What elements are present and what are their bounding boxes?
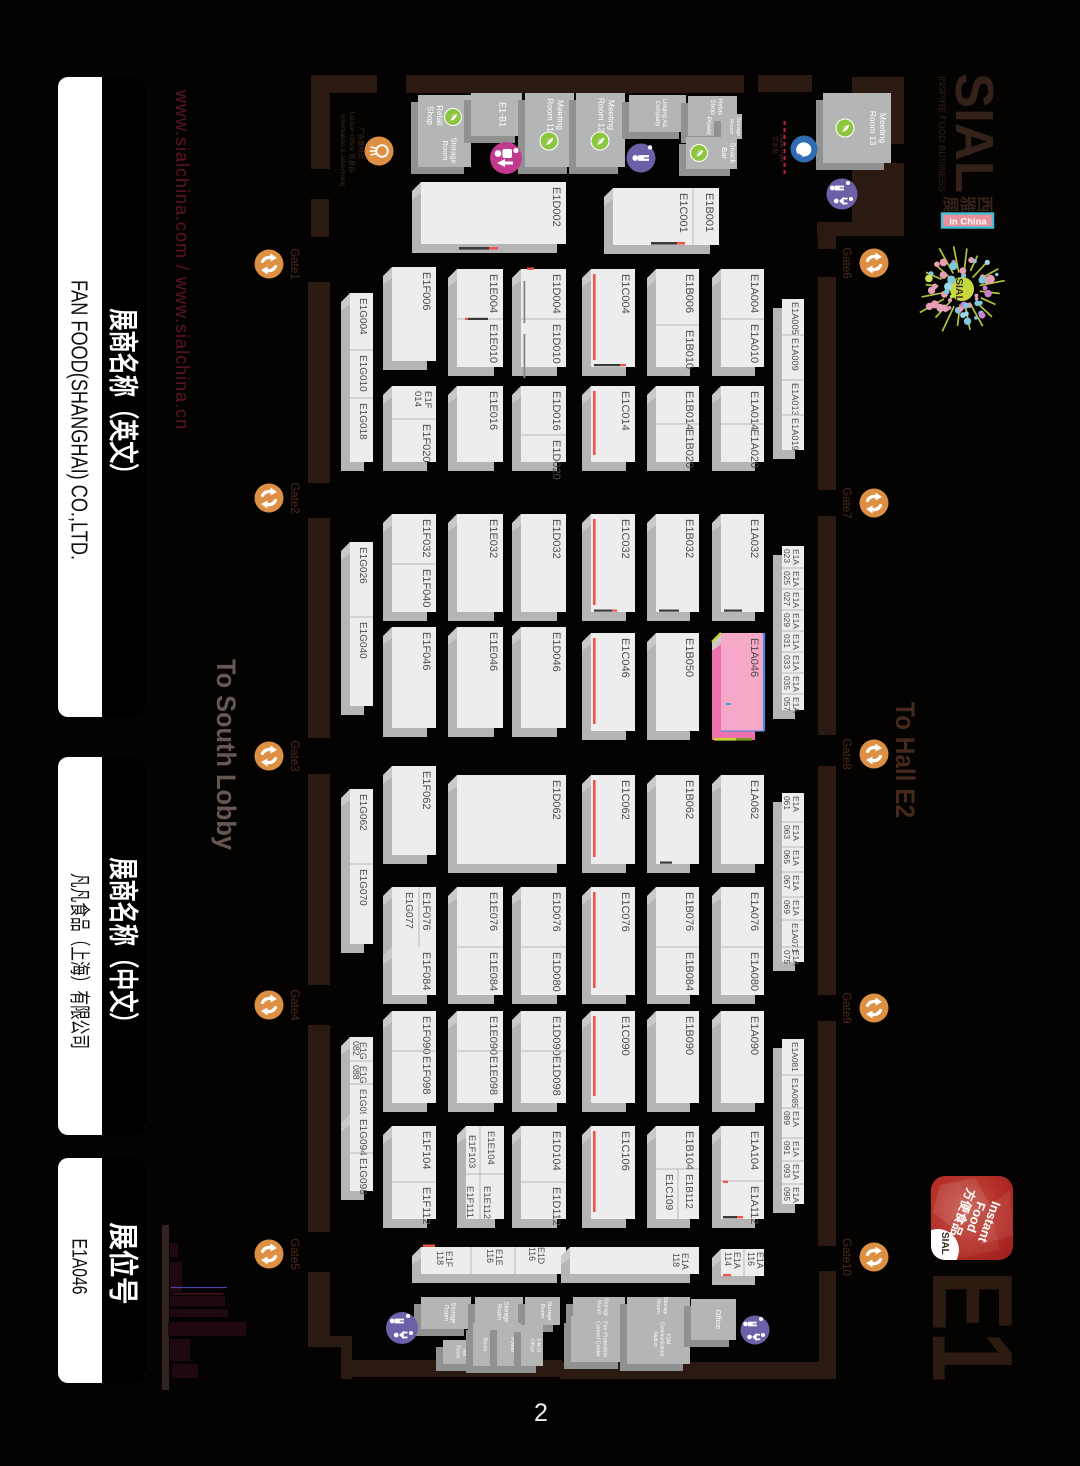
svg-text:SIAL: SIAL xyxy=(944,73,1004,193)
svg-text:Station: Station xyxy=(652,1331,658,1347)
svg-text:E1C046: E1C046 xyxy=(619,638,631,678)
svg-text:E1A104: E1A104 xyxy=(748,1131,760,1170)
svg-text:SIAL: SIAL xyxy=(939,1232,950,1255)
svg-text:E1G098: E1G098 xyxy=(357,1158,368,1195)
svg-text:029: 029 xyxy=(782,613,792,627)
svg-text:E1D090: E1D090 xyxy=(550,1016,562,1056)
svg-text:E1E016: E1E016 xyxy=(487,391,499,430)
svg-text:E1C109: E1C109 xyxy=(663,1174,674,1211)
svg-text:E1D010: E1D010 xyxy=(550,324,562,364)
svg-text:To Hall E2: To Hall E2 xyxy=(890,702,920,818)
svg-text:118: 118 xyxy=(671,1253,681,1267)
svg-text:116: 116 xyxy=(527,1247,537,1261)
svg-text:Tea: Tea xyxy=(461,1348,467,1356)
svg-text:E1F062: E1F062 xyxy=(420,771,432,810)
svg-text:091: 091 xyxy=(782,1141,792,1155)
svg-text:093: 093 xyxy=(782,1164,792,1178)
svg-text:E1D046: E1D046 xyxy=(550,632,562,672)
svg-text:E1D020: E1D020 xyxy=(550,440,562,480)
svg-text:E1F084: E1F084 xyxy=(420,952,432,991)
svg-text:E1E084: E1E084 xyxy=(487,952,499,991)
svg-text:E1F032: E1F032 xyxy=(420,519,432,558)
svg-text:E1A112: E1A112 xyxy=(748,1186,760,1224)
svg-text:Gate2: Gate2 xyxy=(288,482,300,513)
svg-text:025: 025 xyxy=(782,571,792,585)
svg-text:Gate5: Gate5 xyxy=(288,1238,300,1269)
svg-text:E1C032: E1C032 xyxy=(619,519,631,559)
svg-text:Power: Power xyxy=(705,117,712,136)
svg-text:118: 118 xyxy=(435,1251,445,1265)
svg-text:E1A019: E1A019 xyxy=(790,418,800,451)
svg-text:Linqing Ad.: Linqing Ad. xyxy=(661,99,667,129)
svg-text:E1B090: E1B090 xyxy=(683,1016,695,1055)
svg-text:E1C014: E1C014 xyxy=(619,391,631,431)
svg-text:E1G026: E1G026 xyxy=(357,547,368,584)
svg-text:Room 12: Room 12 xyxy=(597,98,607,133)
svg-text:Gate3: Gate3 xyxy=(288,740,300,771)
svg-text:088: 088 xyxy=(351,1065,361,1080)
svg-text:E1D080: E1D080 xyxy=(550,952,562,992)
svg-text:展: 展 xyxy=(941,196,960,213)
svg-text:Water Point: Water Point xyxy=(778,134,784,163)
svg-text:in China: in China xyxy=(949,217,987,228)
svg-text:E1F040: E1F040 xyxy=(420,569,432,608)
svg-text:E1B050: E1B050 xyxy=(683,638,695,677)
svg-text:E1B006: E1B006 xyxy=(683,274,695,313)
svg-text:023: 023 xyxy=(782,549,792,563)
svg-text:Room: Room xyxy=(455,1345,461,1358)
svg-text:061: 061 xyxy=(782,796,792,810)
svg-text:E1B032: E1B032 xyxy=(683,519,695,558)
svg-text:E1D002: E1D002 xyxy=(550,187,562,227)
svg-text:E1A009: E1A009 xyxy=(790,338,800,371)
svg-text:082: 082 xyxy=(351,1041,361,1056)
svg-text:Gate7: Gate7 xyxy=(840,487,852,518)
svg-text:雅: 雅 xyxy=(958,195,978,213)
svg-text:Office: Office xyxy=(714,1310,723,1329)
svg-text:Storage: Storage xyxy=(503,1301,509,1323)
svg-text:E1D098: E1D098 xyxy=(550,1056,562,1096)
svg-text:Room 11: Room 11 xyxy=(546,98,556,132)
svg-text:Information & Advertising: Information & Advertising xyxy=(339,114,346,187)
svg-text:Room: Room xyxy=(539,1304,545,1319)
svg-text:Room: Room xyxy=(482,1338,488,1351)
svg-text:Gate8: Gate8 xyxy=(840,738,852,769)
svg-text:E1E098: E1E098 xyxy=(487,1056,499,1095)
svg-text:E1D032: E1D032 xyxy=(550,519,562,559)
svg-text:E1A076: E1A076 xyxy=(748,892,760,931)
svg-text:E1A081: E1A081 xyxy=(790,1042,800,1072)
svg-text:E1G018: E1G018 xyxy=(357,403,368,440)
svg-text:067: 067 xyxy=(782,875,792,889)
svg-text:Meeting: Meeting xyxy=(555,100,565,131)
svg-text:FAN FOOD(SHANGHAI) CO.,LTD.: FAN FOOD(SHANGHAI) CO.,LTD. xyxy=(67,280,93,560)
svg-text:Room: Room xyxy=(441,140,450,160)
svg-text:E1F076: E1F076 xyxy=(420,892,432,931)
svg-text:Liaison Office 信息台: Liaison Office 信息台 xyxy=(348,112,357,173)
svg-text:E1B001: E1B001 xyxy=(703,193,715,232)
svg-text:Retail: Retail xyxy=(717,99,724,116)
svg-text:Gate6: Gate6 xyxy=(840,247,852,278)
svg-text:E1D104: E1D104 xyxy=(550,1131,562,1171)
svg-text:E1F090: E1F090 xyxy=(420,1016,432,1055)
svg-text:E1F098: E1F098 xyxy=(420,1056,432,1095)
svg-text:凡凡食品（上海）有限公司: 凡凡食品（上海）有限公司 xyxy=(67,873,90,1049)
svg-text:Control Center: Control Center xyxy=(595,1321,601,1357)
svg-text:E1G040: E1G040 xyxy=(357,622,368,659)
svg-text:Meeting: Meeting xyxy=(606,100,616,131)
svg-text:114: 114 xyxy=(723,1252,733,1266)
svg-text:E1A071: E1A071 xyxy=(790,923,800,953)
svg-text:Gate9: Gate9 xyxy=(840,992,852,1023)
svg-text:E1E090: E1E090 xyxy=(487,1016,499,1055)
svg-text:033: 033 xyxy=(782,655,792,669)
svg-text:E1C076: E1C076 xyxy=(619,892,631,932)
svg-text:116: 116 xyxy=(746,1252,756,1266)
svg-text:E1: E1 xyxy=(908,1270,1035,1382)
svg-text:E1F104: E1F104 xyxy=(420,1131,432,1170)
svg-text:075: 075 xyxy=(782,950,792,964)
svg-text:063: 063 xyxy=(782,825,792,839)
svg-text:116: 116 xyxy=(485,1249,495,1263)
svg-text:E1D062: E1D062 xyxy=(550,780,562,820)
svg-text:Room: Room xyxy=(496,1304,502,1320)
svg-text:2: 2 xyxy=(534,1399,548,1427)
svg-text:E1B010: E1B010 xyxy=(683,330,695,369)
svg-text:Storage: Storage xyxy=(450,1302,456,1324)
svg-text:E1G077: E1G077 xyxy=(403,892,414,929)
svg-text:Office: Office xyxy=(529,1339,535,1352)
svg-text:E1A085: E1A085 xyxy=(790,1078,800,1108)
svg-text:E1A004: E1A004 xyxy=(748,274,760,313)
svg-text:www.sialchina.com / www.sialch: www.sialchina.com / www.sialchina.cn xyxy=(172,89,192,430)
svg-text:E1G010: E1G010 xyxy=(357,355,368,392)
svg-text:E1E032: E1E032 xyxy=(487,519,499,558)
svg-text:E1C004: E1C004 xyxy=(619,274,631,314)
svg-text:Bar: Bar xyxy=(720,147,729,159)
svg-text:E1D112: E1D112 xyxy=(550,1187,562,1226)
svg-text:Room: Room xyxy=(728,119,734,134)
svg-text:E1A013: E1A013 xyxy=(790,383,800,416)
svg-text:E1F046: E1F046 xyxy=(420,632,432,671)
svg-text:Storage: Storage xyxy=(602,1298,608,1317)
svg-text:E1A090: E1A090 xyxy=(748,1016,760,1055)
svg-text:展位号: 展位号 xyxy=(106,1223,140,1305)
svg-text:E1B084: E1B084 xyxy=(683,952,695,991)
svg-text:E1E076: E1E076 xyxy=(487,892,499,931)
svg-text:E1A080: E1A080 xyxy=(748,952,760,991)
svg-text:031: 031 xyxy=(782,634,792,648)
svg-text:E1A046: E1A046 xyxy=(748,638,760,677)
svg-text:广告联络处: 广告联络处 xyxy=(357,127,366,160)
svg-text:E1G094: E1G094 xyxy=(357,1119,368,1156)
svg-text:065: 065 xyxy=(782,850,792,864)
svg-text:Retail: Retail xyxy=(435,105,444,126)
svg-text:Room: Room xyxy=(443,1305,449,1321)
svg-text:E1G004: E1G004 xyxy=(357,298,368,335)
svg-text:E1E104: E1E104 xyxy=(485,1131,496,1165)
svg-text:E1C062: E1C062 xyxy=(619,780,631,820)
svg-text:E1F112: E1F112 xyxy=(420,1187,432,1225)
svg-text:Room 13: Room 13 xyxy=(868,111,878,146)
svg-text:F.M.O: F.M.O xyxy=(535,1339,541,1352)
svg-text:095: 095 xyxy=(782,1187,792,1201)
svg-text:E1E112: E1E112 xyxy=(481,1186,492,1219)
svg-text:014: 014 xyxy=(412,391,423,407)
svg-text:饮水处: 饮水处 xyxy=(771,136,779,154)
svg-text:E1A005: E1A005 xyxy=(790,302,800,335)
svg-text:E1A032: E1A032 xyxy=(748,519,760,558)
svg-text:Shop: Shop xyxy=(426,106,435,125)
svg-text:E1F020: E1F020 xyxy=(420,424,432,463)
svg-text:E1E046: E1E046 xyxy=(487,632,499,671)
svg-text:057: 057 xyxy=(782,697,792,711)
svg-text:FDM: FDM xyxy=(664,1334,670,1345)
svg-text:Communication: Communication xyxy=(658,1322,664,1357)
svg-text:E1C106: E1C106 xyxy=(619,1131,631,1171)
svg-text:Storage: Storage xyxy=(735,117,741,136)
svg-text:E1-B1: E1-B1 xyxy=(498,102,508,127)
svg-text:Storage: Storage xyxy=(546,1301,552,1320)
svg-text:E1F103: E1F103 xyxy=(466,1135,477,1168)
svg-text:Room: Room xyxy=(596,1300,602,1315)
svg-text:E1F006: E1F006 xyxy=(420,272,432,311)
svg-text:展商名称（英文）: 展商名称（英文） xyxy=(106,309,140,486)
svg-text:SIAL: SIAL xyxy=(953,278,965,303)
svg-text:E1D016: E1D016 xyxy=(550,391,562,431)
svg-text:To South Lobby: To South Lobby xyxy=(211,659,241,850)
svg-text:E1A062: E1A062 xyxy=(748,780,760,819)
svg-text:西: 西 xyxy=(975,196,993,213)
svg-text:E1G070: E1G070 xyxy=(357,869,368,906)
svg-text:Storage: Storage xyxy=(662,1297,668,1316)
svg-text:089: 089 xyxy=(782,1111,792,1125)
svg-text:E1A010: E1A010 xyxy=(748,324,760,363)
svg-text:Shop: Shop xyxy=(709,99,716,115)
svg-text:INSPIRE FOOD BUSINESS: INSPIRE FOOD BUSINESS xyxy=(936,76,947,192)
svg-text:E1B020: E1B020 xyxy=(683,429,695,468)
svg-text:Gate10: Gate10 xyxy=(840,1238,852,1276)
svg-text:E1C001: E1C001 xyxy=(677,193,689,233)
svg-text:E1B076: E1B076 xyxy=(683,892,695,931)
svg-text:E1A046: E1A046 xyxy=(67,1239,90,1295)
svg-text:Snack: Snack xyxy=(728,143,737,164)
svg-text:E1B062: E1B062 xyxy=(683,780,695,819)
svg-text:Meeting: Meeting xyxy=(878,113,888,144)
svg-text:Gate1: Gate1 xyxy=(288,248,300,279)
svg-text:E1A020: E1A020 xyxy=(748,429,760,468)
svg-text:E1D004: E1D004 xyxy=(550,274,562,314)
svg-text:E1B104: E1B104 xyxy=(683,1131,695,1170)
svg-text:E1D076: E1D076 xyxy=(550,892,562,932)
svg-text:Company: Company xyxy=(654,101,660,127)
svg-text:E1C090: E1C090 xyxy=(619,1016,631,1056)
svg-text:E1F111: E1F111 xyxy=(464,1186,475,1218)
svg-text:展商名称（中文）: 展商名称（中文） xyxy=(106,858,140,1035)
svg-text:E1E010: E1E010 xyxy=(487,324,499,363)
svg-text:069: 069 xyxy=(782,900,792,914)
svg-text:027: 027 xyxy=(782,592,792,606)
svg-text:035: 035 xyxy=(782,676,792,690)
svg-text:E1E004: E1E004 xyxy=(487,274,499,313)
svg-text:E1B112: E1B112 xyxy=(683,1174,694,1209)
svg-text:E1G062: E1G062 xyxy=(357,794,368,831)
svg-text:Fire Protection: Fire Protection xyxy=(601,1321,607,1357)
svg-text:Storage: Storage xyxy=(449,137,458,163)
svg-text:Room: Room xyxy=(655,1299,661,1314)
svg-text:Gate4: Gate4 xyxy=(288,989,300,1021)
